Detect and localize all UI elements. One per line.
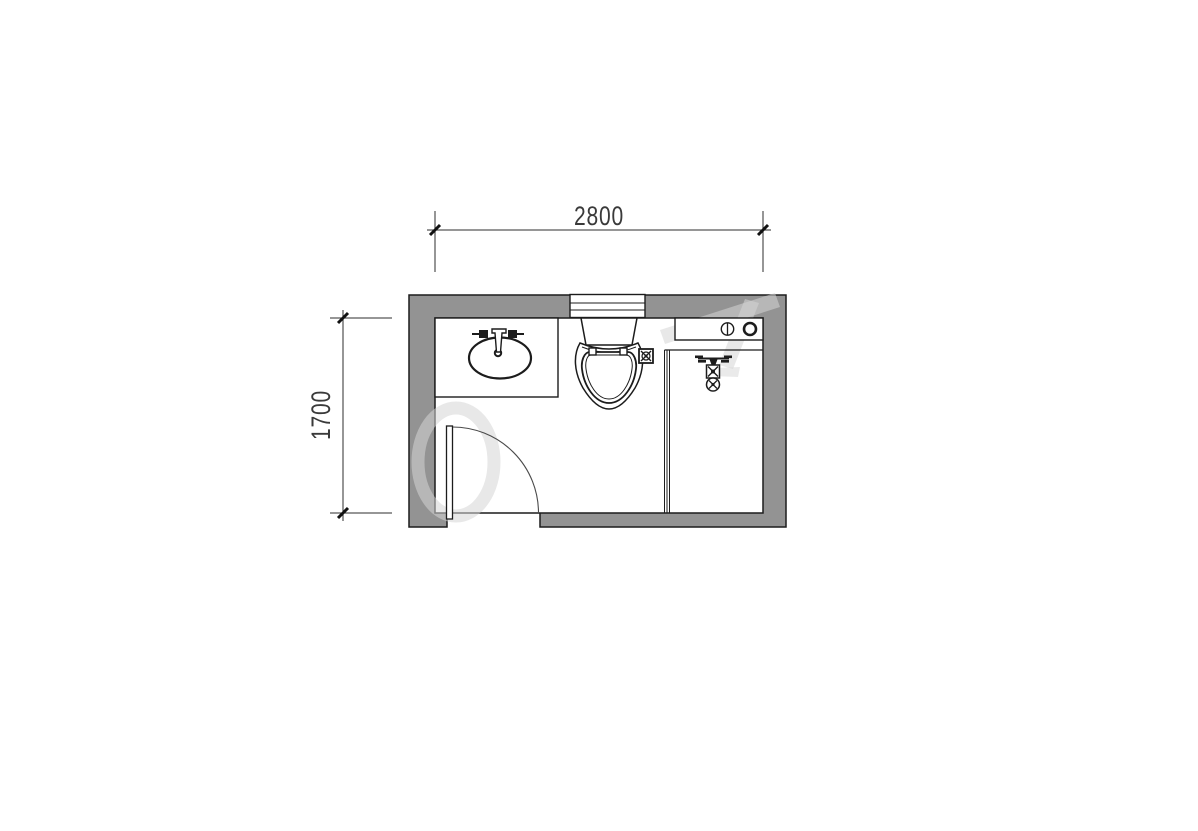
laundry-counter xyxy=(675,318,763,340)
drain-ring-icon xyxy=(744,323,756,335)
dimension-top-label: 2800 xyxy=(574,202,624,232)
window-icon xyxy=(570,295,645,318)
valve-knob-icon xyxy=(721,323,733,335)
toilet-icon xyxy=(575,318,642,409)
dimension-left: 1700 xyxy=(307,310,392,521)
floor-drain-icon xyxy=(639,349,653,363)
floor-plan-page: 2800 1700 xyxy=(0,0,1198,831)
dimension-top: 2800 xyxy=(427,202,771,272)
floor-plan-canvas: 2800 1700 xyxy=(0,0,1198,831)
dimension-left-label: 1700 xyxy=(307,390,337,440)
